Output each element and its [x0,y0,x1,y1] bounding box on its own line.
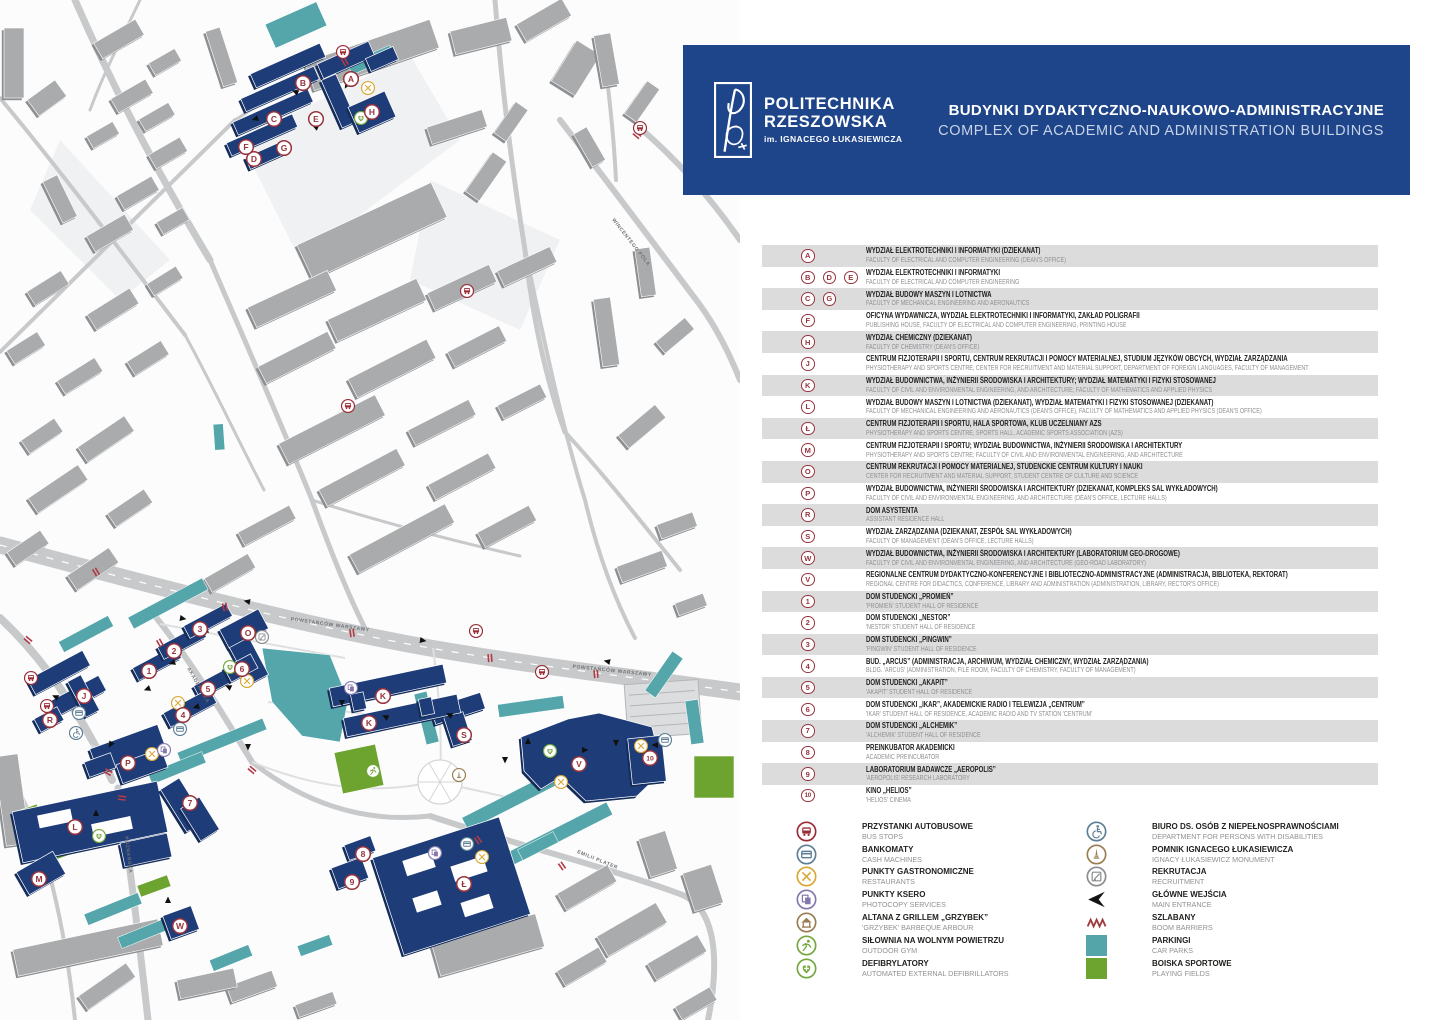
building-code-10: 10 [801,789,815,803]
svg-text:Ł: Ł [461,879,466,889]
map-marker-G: G [277,141,292,156]
legend-label-en: OUTDOOR GYM [862,947,1004,954]
building-name-en: 'PINGWIN' STUDENT HALL OF RESIDENCE [866,646,977,653]
building-name-en: BLDG. 'ARCUS' (ADMINISTRATION, FILE ROOM… [866,667,1136,674]
building-code-S: S [801,530,815,544]
legend-label-pl: BANKOMATY [862,846,922,854]
building-list-row-H: HWYDZIAŁ CHEMICZNY (DZIEKANAT)FACULTY OF… [762,331,1378,353]
map-marker-V: V [572,757,587,772]
building-name-en: ASSISTANT RESIDENCE HALL [866,516,944,523]
building-codes: P [762,487,866,501]
legend-item-fields: BOISKA SPORTOWEPLAYING FIELDS [1085,957,1385,980]
arbour-icon [795,912,817,934]
logo-monogram-icon [713,82,753,158]
building-code-W: W [801,551,815,565]
map-marker-W: W [173,919,188,934]
fields-icon [1086,958,1107,979]
building-name-en: PHYSIOTHERAPY AND SPORTS CENTRE, SPORTS … [866,430,1123,437]
entrance-icon [1085,889,1107,911]
legend-label-en: 'GRZYBEK' BARBEQUE ARBOUR [862,924,988,931]
building-list-row-P: PWYDZIAŁ BUDOWNICTWA, INŻYNIERII ŚRODOWI… [762,483,1378,505]
legend-label-en: DEPARTMENT FOR PERSONS WITH DISABILITIES [1152,833,1339,840]
building-name-pl: WYDZIAŁ ELEKTROTECHNIKI I INFORMATYKI (D… [866,247,1040,255]
building-list-row-5: 5DOM STUDENCKI „AKAPIT”'AKAPIT' STUDENT … [762,677,1378,699]
building-codes: 6 [762,703,866,717]
aed-icon [795,957,817,979]
page-title: BUDYNKI DYDAKTYCZNO-NAUKOWO-ADMINISTRACY… [938,102,1384,139]
legend-label-en: BOOM BARRIERS [1152,924,1213,931]
svg-text:5: 5 [206,684,211,694]
bus-icon [470,625,483,638]
legend-label-pl: REKRUTACJA [1152,868,1207,876]
building-list-row-6: 6DOM STUDENCKI „IKAR”, AKADEMICKIE RADIO… [762,698,1378,720]
building-code-H: H [801,335,815,349]
legend-label-en: MAIN ENTRANCE [1152,901,1227,908]
building-codes: 1 [762,595,866,609]
map-marker-H: H [365,105,380,120]
svg-text:J: J [82,691,87,701]
building-list-row-K: KWYDZIAŁ BUDOWNICTWA, INŻYNIERII ŚRODOWI… [762,375,1378,397]
legend-label-pl: GŁÓWNE WEJŚCIA [1152,891,1227,899]
svg-text:O: O [245,628,252,638]
recruit-icon [256,631,269,644]
copy-icon [158,744,171,757]
bus-icon [536,666,549,679]
building-name-pl: WYDZIAŁ BUDOWNICTWA, INŻYNIERII ŚRODOWIS… [866,485,1218,493]
svg-text:K: K [366,718,373,728]
svg-text:2: 2 [172,646,177,656]
svg-text:V: V [576,759,582,769]
svg-text:B: B [300,78,306,88]
fields-icon [1085,957,1107,979]
building-name-pl: DOM STUDENCKI „PROMIEŃ” [866,593,954,601]
map-legend-left: PRZYSTANKI AUTOBUSOWEBUS STOPSBANKOMATYC… [795,820,1095,980]
bus-icon [25,672,38,685]
building-name-en: FACULTY OF ELECTRICAL AND COMPUTER ENGIN… [866,257,1066,264]
map-marker-A: A [344,72,359,87]
building-codes: 10 [762,789,866,803]
building-code-M: M [801,443,815,457]
building-name-pl: CENTRUM FIZJOTERAPII I SPORTU, CENTRUM R… [866,355,1288,363]
building-list-row-C-G: CGWYDZIAŁ BUDOWY MASZYN I LOTNICTWAFACUL… [762,288,1378,310]
building-name-pl: DOM ASYSTENTA [866,507,918,515]
building-list-row-4: 4BUD. „ARCUS” (ADMINISTRACJA, ARCHIWUM, … [762,655,1378,677]
svg-text:8: 8 [361,849,366,859]
atm-icon [659,734,672,747]
building-codes: 2 [762,616,866,630]
building-code-D: D [823,271,837,285]
building-codes: BDE [762,271,866,285]
building-list-row-A: AWYDZIAŁ ELEKTROTECHNIKI I INFORMATYKI (… [762,245,1378,267]
legend-label-pl: ALTANA Z GRILLEM „GRZYBEK” [862,914,988,922]
university-patron: im. IGNACEGO ŁUKASIEWICZA [764,135,902,144]
building-code-F: F [801,314,815,328]
building-name-pl: DOM STUDENCKI „AKAPIT” [866,679,948,687]
building-name-pl: WYDZIAŁ BUDOWY MASZYN I LOTNICTWA (DZIEK… [866,399,1213,407]
map-marker-1: 1 [142,664,157,679]
wheel-icon [1087,822,1105,840]
building-name-pl: WYDZIAŁ BUDOWNICTWA, INŻYNIERII ŚRODOWIS… [866,550,1180,558]
food-icon [635,740,648,753]
building-name-pl: PREINKUBATOR AKADEMICKI [866,744,955,752]
building-name-en: FACULTY OF CIVIL AND ENVIRONMENTAL ENGIN… [866,387,1212,394]
building-code-3: 3 [801,638,815,652]
building-list-row-3: 3DOM STUDENCKI „PINGWIN”'PINGWIN' STUDEN… [762,634,1378,656]
building-name-pl: CENTRUM REKRUTACJI I POMOCY MATERIALNEJ,… [866,463,1143,471]
building-name-en: FACULTY OF CHEMISTRY (DEAN'S OFFICE) [866,344,979,351]
svg-text:A: A [348,74,354,84]
atm-icon [461,838,474,851]
building-name-en: FACULTY OF MECHANICAL ENGINEERING AND AE… [866,300,1029,307]
svg-text:M: M [35,874,42,884]
wheel-icon [1085,820,1107,842]
svg-text:W: W [176,921,185,931]
building-code-K: K [801,379,815,393]
legend-label-pl: PUNKTY KSERO [862,891,946,899]
building-list-row-2: 2DOM STUDENCKI „NESTOR”'NESTOR' STUDENT … [762,612,1378,634]
map-marker-J: J [77,689,92,704]
building-list-row-B-D-E: BDEWYDZIAŁ ELEKTROTECHNIKI I INFORMATYKI… [762,267,1378,289]
legend-label-pl: DEFIBRYLATORY [862,960,1009,968]
food-icon [146,748,159,761]
food-icon [555,776,568,789]
building-list-row-R: RDOM ASYSTENTAASSISTANT RESIDENCE HALL [762,504,1378,526]
building-codes: F [762,314,866,328]
building-codes: R [762,508,866,522]
building-code-L: L [801,400,815,414]
svg-text:G: G [281,143,288,153]
wheel-icon [70,727,83,740]
building-name-en: 'PROMIEŃ' STUDENT HALL OF RESIDENCE [866,603,978,610]
map-marker-K: K [376,689,391,704]
svg-text:H: H [369,107,375,117]
building-name-pl: WYDZIAŁ BUDOWY MASZYN I LOTNICTWA [866,291,992,299]
building-name-pl: KINO „HELIOS” [866,787,912,795]
building-code-Ł: Ł [801,422,815,436]
building-list-row-F: FOFICYNA WYDAWNICZA, WYDZIAŁ ELEKTROTECH… [762,310,1378,332]
map-marker-E: E [309,112,324,127]
gym-icon [795,934,817,956]
bus-icon [342,400,355,413]
building-name-en: ACADEMIC PREINCUBATOR [866,754,939,761]
building-list-row-J: JCENTRUM FIZJOTERAPII I SPORTU, CENTRUM … [762,353,1378,375]
building-list-row-V: VREGIONALNE CENTRUM DYDAKTYCZNO-KONFEREN… [762,569,1378,591]
building-list-row-L: LWYDZIAŁ BUDOWY MASZYN I LOTNICTWA (DZIE… [762,396,1378,418]
food-icon [795,866,817,888]
building-name-en: REGIONAL CENTRE FOR DIDACTICS, CONFERENC… [866,581,1219,588]
map-marker-2: 2 [167,644,182,659]
building-code-1: 1 [801,595,815,609]
copy-icon [797,891,815,909]
building-name-pl: WYDZIAŁ CHEMICZNY (DZIEKANAT) [866,334,972,342]
svg-text:L: L [72,822,77,832]
title-english: COMPLEX OF ACADEMIC AND ADMINISTRATION B… [938,123,1384,139]
atm-icon [795,843,817,865]
map-legend-right: BIURO DS. OSÓB Z NIEPEŁNOSPRAWNOŚCIAMIDE… [1085,820,1385,980]
building-code-J: J [801,357,815,371]
building-codes: S [762,530,866,544]
food-icon [797,868,815,886]
legend-label-en: CASH MACHINES [862,856,922,863]
svg-text:3: 3 [198,624,203,634]
building-code-8: 8 [801,746,815,760]
building-list-row-7: 7DOM STUDENCKI „ALCHEMIK”'ALCHEMIK' STUD… [762,720,1378,742]
svg-text:7: 7 [188,798,193,808]
building-name-pl: DOM STUDENCKI „IKAR”, AKADEMICKIE RADIO … [866,701,1085,709]
map-marker-B: B [296,76,311,91]
map-marker-F: F [239,140,254,155]
building-name-en: PUBLISHING HOUSE, FACULTY OF ELECTRICAL … [866,322,1127,329]
legend-label-en: IGNACY ŁUKASIEWICZ MONUMENT [1152,856,1293,863]
building-name-pl: WYDZIAŁ ZARZĄDZANIA (DZIEKANAT, ZESPÓŁ S… [866,528,1072,536]
building-code-R: R [801,508,815,522]
building-list-row-O: OCENTRUM REKRUTACJI I POMOCY MATERIALNEJ… [762,461,1378,483]
building-code-E: E [844,271,858,285]
building-name-en: 'ALCHEMIK' STUDENT HALL OF RESIDENCE [866,732,981,739]
svg-text:4: 4 [181,710,186,720]
building-name-en: 'AEROPOLIS' RESEARCH LABORATORY [866,775,970,782]
legend-item-wheel: BIURO DS. OSÓB Z NIEPEŁNOSPRAWNOŚCIAMIDE… [1085,820,1385,843]
building-name-pl: CENTRUM FIZJOTERAPII I SPORTU, HALA SPOR… [866,420,1101,428]
gym-icon [797,936,815,954]
svg-text:9: 9 [350,877,355,887]
legend-label-en: AUTOMATED EXTERNAL DEFIBRILLATORS [862,970,1009,977]
building-list-row-W: WWYDZIAŁ BUDOWNICTWA, INŻYNIERII ŚRODOWI… [762,547,1378,569]
monument-icon [1087,845,1105,863]
map-marker-R: R [43,713,58,728]
building-code-5: 5 [801,681,815,695]
map-marker-S: S [457,728,472,743]
legend-label-en: PHOTOCOPY SERVICES [862,901,946,908]
legend-item-aed: DEFIBRYLATORYAUTOMATED EXTERNAL DEFIBRIL… [795,957,1095,980]
building-list-row-10: 10KINO „HELIOS”'HELIOS' CINEMA [762,785,1378,807]
food-icon [476,851,489,864]
map-marker-O: O [241,626,256,641]
building-codes: 8 [762,746,866,760]
aed-icon [93,830,106,843]
legend-item-atm: BANKOMATYCASH MACHINES [795,843,1095,866]
legend-label-pl: SZLABANY [1152,914,1213,922]
building-code-P: P [801,487,815,501]
building-list-row-Ł: ŁCENTRUM FIZJOTERAPII I SPORTU, HALA SPO… [762,418,1378,440]
building-name-en: PHYSIOTHERAPY AND SPORTS CENTRE, CENTER … [866,365,1309,372]
building-name-en: 'AKAPIT' STUDENT HALL OF RESIDENCE [866,689,972,696]
recruit-icon [1085,866,1107,888]
building-code-G: G [823,292,837,306]
map-marker-8: 8 [356,847,371,862]
copy-icon [429,847,442,860]
building-codes: CG [762,292,866,306]
arbour-icon [797,913,815,931]
legend-item-barrier: SZLABANYBOOM BARRIERS [1085,911,1385,934]
legend-label-pl: BIURO DS. OSÓB Z NIEPEŁNOSPRAWNOŚCIAMI [1152,823,1339,831]
building-codes: 7 [762,724,866,738]
legend-label-pl: SIŁOWNIA NA WOLNYM POWIETRZU [862,937,1004,945]
legend-label-en: RESTAURANTS [862,878,974,885]
gym-icon [367,765,380,778]
building-code-C: C [801,292,815,306]
building-code-4: 4 [801,659,815,673]
building-codes: Ł [762,422,866,436]
building-code-O: O [801,465,815,479]
map-marker-5: 5 [201,682,216,697]
building-codes: J [762,357,866,371]
campus-map: POWSTAŃCÓW WARSZAWYPOWSTAŃCÓW WARSZAWYAK… [0,0,740,1020]
building-list-row-9: 9LABORATORIUM BADAWCZE „AEROPOLIS”'AEROP… [762,763,1378,785]
svg-text:R: R [47,715,53,725]
map-marker-P: P [121,756,136,771]
parking-icon [1085,934,1107,956]
monument-icon [1085,843,1107,865]
building-codes: 5 [762,681,866,695]
university-name-line1: POLITECHNIKA [764,96,902,113]
map-marker-L: L [68,820,83,835]
atm-icon [797,845,815,863]
legend-label-pl: PRZYSTANKI AUTOBUSOWE [862,823,973,831]
bus-icon [634,122,647,135]
legend-item-gym: SIŁOWNIA NA WOLNYM POWIETRZUOUTDOOR GYM [795,934,1095,957]
building-code-6: 6 [801,703,815,717]
building-name-pl: DOM STUDENCKI „PINGWIN” [866,636,952,644]
map-marker-C: C [267,112,282,127]
bus-icon [795,820,817,842]
svg-text:10: 10 [646,755,654,762]
food-icon [362,82,375,95]
map-marker-Ł: Ł [457,877,472,892]
building-codes: 3 [762,638,866,652]
building-code-B: B [801,271,815,285]
svg-text:D: D [251,154,257,164]
bus-icon [461,285,474,298]
building-name-en: FACULTY OF MANAGEMENT (DEAN'S OFFICE, LE… [866,538,1034,545]
legend-item-monument: POMNIK IGNACEGO ŁUKASIEWICZAIGNACY ŁUKAS… [1085,843,1385,866]
university-name-line2: RZESZOWSKA [764,114,902,131]
header-banner: POLITECHNIKA RZESZOWSKA im. IGNACEGO ŁUK… [683,45,1410,195]
svg-text:C: C [271,114,277,124]
legend-label-pl: BOISKA SPORTOWE [1152,960,1232,968]
legend-item-bus: PRZYSTANKI AUTOBUSOWEBUS STOPS [795,820,1095,843]
building-name-en: PHYSIOTHERAPY AND SPORTS CENTRE; FACULTY… [866,452,1183,459]
copy-icon [795,889,817,911]
svg-text:P: P [125,758,131,768]
legend-label-en: PLAYING FIELDS [1152,970,1232,977]
university-logo: POLITECHNIKA RZESZOWSKA im. IGNACEGO ŁUK… [713,82,902,158]
map-marker-10: 10 [643,751,658,766]
building-name-en: 'IKAR' STUDENT HALL OF RESIDENCE, ACADEM… [866,711,1092,718]
building-name-en: CENTER FOR RECRUITMENT AND MATERIAL SUPP… [866,473,1138,480]
building-name-en: FACULTY OF CIVIL AND ENVIRONMENTAL ENGIN… [866,560,1146,567]
legend-item-food: PUNKTY GASTRONOMICZNERESTAURANTS [795,866,1095,889]
building-code-9: 9 [801,767,815,781]
building-name-pl: OFICYNA WYDAWNICZA, WYDZIAŁ ELEKTROTECHN… [866,312,1140,320]
building-codes: A [762,249,866,263]
building-code-2: 2 [801,616,815,630]
entrance-icon [1088,892,1105,907]
svg-text:K: K [380,691,387,701]
svg-text:E: E [313,114,319,124]
legend-label-en: BUS STOPS [862,833,973,840]
legend-item-parking: PARKINGICAR PARKS [1085,934,1385,957]
building-name-pl: DOM STUDENCKI „ALCHEMIK” [866,722,957,730]
campus-map-page: POWSTAŃCÓW WARSZAWYPOWSTAŃCÓW WARSZAWYAK… [0,0,1439,1020]
bus-icon [797,822,815,840]
map-marker-K: K [362,716,377,731]
map-marker-7: 7 [183,796,198,811]
map-marker-6: 6 [235,662,250,677]
bus-icon [337,46,350,59]
legend-item-arbour: ALTANA Z GRILLEM „GRZYBEK”'GRZYBEK' BARB… [795,911,1095,934]
building-code-7: 7 [801,724,815,738]
building-name-en: FACULTY OF CIVIL AND ENVIRONMENTAL ENGIN… [866,495,1167,502]
building-codes: H [762,335,866,349]
barrier-icon [1087,920,1105,927]
building-name-pl: CENTRUM FIZJOTERAPII I SPORTU; WYDZIAŁ B… [866,442,1182,450]
aed-icon [797,959,815,977]
building-name-pl: REGIONALNE CENTRUM DYDAKTYCZNO-KONFERENC… [866,571,1288,579]
building-name-en: FACULTY OF MECHANICAL ENGINEERING AND AE… [866,408,1262,415]
barrier-icon [1085,912,1107,934]
recruit-icon [1087,868,1105,886]
building-code-V: V [801,573,815,587]
building-legend-list: AWYDZIAŁ ELEKTROTECHNIKI I INFORMATYKI (… [762,245,1378,806]
building-name-en: 'HELIOS' CINEMA [866,797,911,804]
legend-item-recruit: REKRUTACJARECRUITMENT [1085,866,1385,889]
building-list-row-1: 1DOM STUDENCKI „PROMIEŃ”'PROMIEŃ' STUDEN… [762,591,1378,613]
monument-icon [453,769,466,782]
building-codes: 9 [762,767,866,781]
title-polish: BUDYNKI DYDAKTYCZNO-NAUKOWO-ADMINISTRACY… [938,102,1384,119]
building-codes: M [762,443,866,457]
map-marker-3: 3 [193,622,208,637]
building-name-pl: DOM STUDENCKI „NESTOR” [866,614,950,622]
building-codes: O [762,465,866,479]
bus-icon [41,700,54,713]
building-name-pl: BUD. „ARCUS” (ADMINISTRACJA, ARCHIWUM, W… [866,658,1149,666]
legend-label-pl: POMNIK IGNACEGO ŁUKASIEWICZA [1152,846,1293,854]
building-codes: V [762,573,866,587]
svg-text:S: S [461,730,467,740]
legend-label-en: CAR PARKS [1152,947,1193,954]
legend-item-copy: PUNKTY KSEROPHOTOCOPY SERVICES [795,888,1095,911]
legend-item-entrance: GŁÓWNE WEJŚCIAMAIN ENTRANCE [1085,888,1385,911]
building-code-A: A [801,249,815,263]
atm-icon [73,707,86,720]
building-list-row-S: SWYDZIAŁ ZARZĄDZANIA (DZIEKANAT, ZESPÓŁ … [762,526,1378,548]
building-name-en: 'NESTOR' STUDENT HALL OF RESIDENCE [866,624,975,631]
building-name-en: FACULTY OF ELECTRICAL AND COMPUTER ENGIN… [866,279,1019,286]
svg-text:6: 6 [240,664,245,674]
building-name-pl: WYDZIAŁ ELEKTROTECHNIKI I INFORMATYKI [866,269,1000,277]
building-codes: W [762,551,866,565]
building-name-pl: LABORATORIUM BADAWCZE „AEROPOLIS” [866,766,996,774]
map-marker-9: 9 [345,875,360,890]
building-list-row-8: 8PREINKUBATOR AKADEMICKIACADEMIC PREINCU… [762,742,1378,764]
map-marker-4: 4 [176,708,191,723]
svg-text:F: F [243,142,248,152]
building-codes: L [762,400,866,414]
legend-label-en: RECRUITMENT [1152,878,1207,885]
building-codes: 4 [762,659,866,673]
building-name-pl: WYDZIAŁ BUDOWNICTWA, INŻYNIERII ŚRODOWIS… [866,377,1216,385]
plaza [418,760,462,804]
building-list-row-M: MCENTRUM FIZJOTERAPII I SPORTU; WYDZIAŁ … [762,439,1378,461]
parking-icon [1086,935,1107,956]
building-codes: K [762,379,866,393]
svg-text:1: 1 [147,666,152,676]
copy-icon [345,682,358,695]
map-marker-M: M [32,872,47,887]
legend-label-pl: PARKINGI [1152,937,1193,945]
